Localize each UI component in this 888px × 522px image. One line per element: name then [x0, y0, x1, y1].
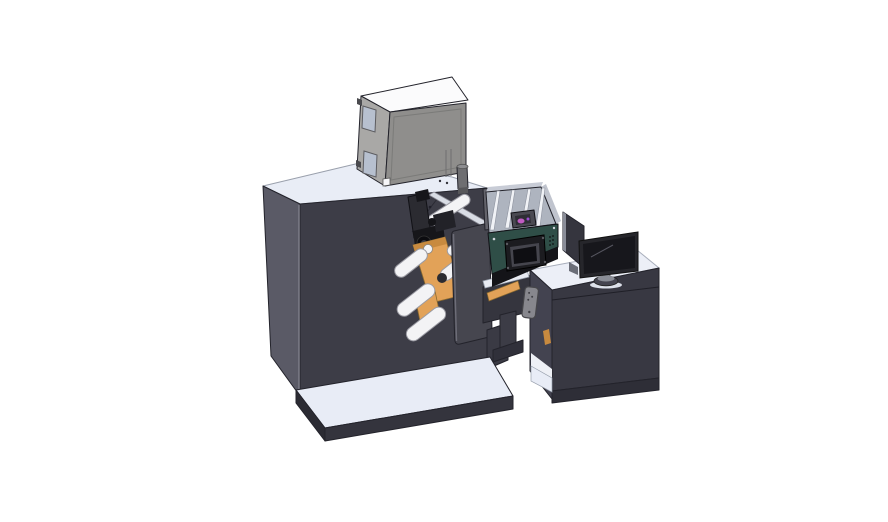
feeder-filter-cylinder — [457, 166, 468, 189]
feeder-window — [363, 151, 377, 177]
filter-cylinder-cap — [457, 164, 468, 168]
panel-screw — [542, 237, 544, 239]
ink-cartridge-violet — [527, 218, 530, 221]
cad-render: Isometric CAD rendering of a label print… — [0, 0, 888, 522]
top-screw — [439, 180, 441, 182]
vent-dot — [552, 235, 554, 237]
panel-screw — [544, 261, 546, 263]
cad-viewport: Isometric CAD rendering of a label print… — [0, 0, 888, 522]
top-screw — [446, 182, 448, 184]
inkjet-screw — [493, 238, 496, 241]
vent-dot — [549, 236, 551, 238]
vent-dot — [552, 239, 554, 241]
machine-left-face — [263, 186, 300, 396]
vent-dot — [549, 244, 551, 246]
pendant-body — [522, 286, 539, 318]
feeder-foot-pad — [383, 178, 390, 186]
feeder-window — [362, 106, 376, 132]
vent-dot — [552, 243, 554, 245]
mechanism-pin — [428, 218, 436, 226]
filter-cylinder-base — [458, 187, 468, 194]
inkjet-screw — [553, 227, 555, 229]
seam-screw — [429, 206, 432, 209]
panel-screw — [507, 267, 509, 269]
control-pendant — [522, 286, 539, 318]
side-panel-edge — [563, 212, 566, 252]
ink-cartridge-magenta — [518, 219, 525, 224]
monitor-stand-top — [598, 276, 615, 282]
vent-dot — [549, 240, 551, 242]
panel-screw — [506, 243, 508, 245]
roller-end-cap — [437, 273, 447, 283]
